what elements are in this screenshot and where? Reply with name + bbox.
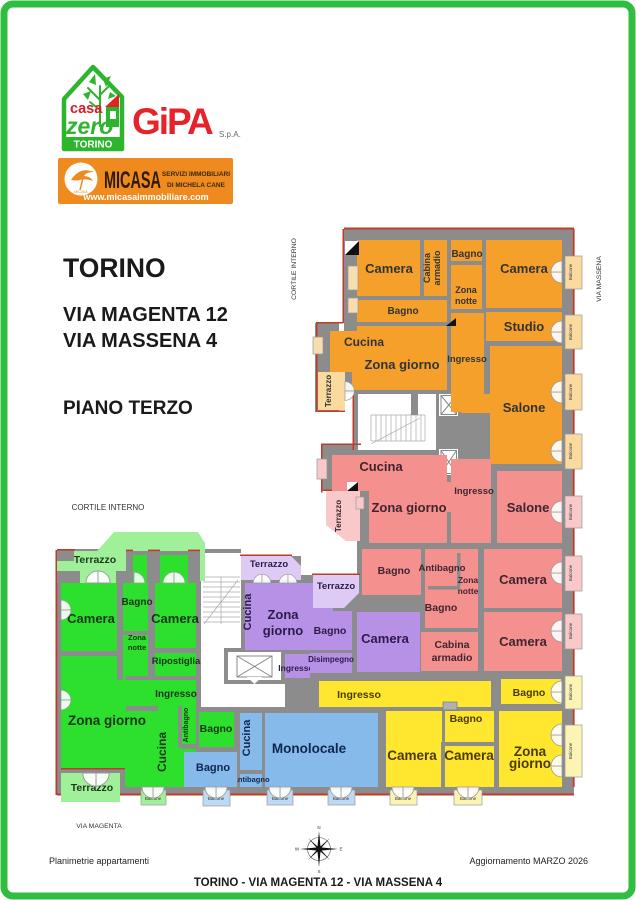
svg-text:Zona: Zona xyxy=(267,607,299,622)
svg-text:Cucina: Cucina xyxy=(241,719,253,757)
svg-text:N: N xyxy=(317,825,320,830)
svg-text:armadio: armadio xyxy=(432,652,473,664)
svg-text:Antibagno: Antibagno xyxy=(232,775,269,784)
svg-text:notte: notte xyxy=(458,586,479,596)
svg-text:Balcone: Balcone xyxy=(568,442,573,459)
svg-text:Zona giorno: Zona giorno xyxy=(364,357,439,372)
svg-text:Bagno: Bagno xyxy=(378,565,411,577)
svg-text:S: S xyxy=(317,869,320,874)
svg-text:Balcone: Balcone xyxy=(568,564,573,581)
svg-text:Bagno: Bagno xyxy=(387,306,418,317)
svg-text:Studio: Studio xyxy=(504,319,544,334)
svg-text:Ingresso: Ingresso xyxy=(454,486,494,497)
svg-text:Bagno: Bagno xyxy=(425,602,458,614)
svg-text:Bagno: Bagno xyxy=(513,687,546,699)
svg-text:Cucina: Cucina xyxy=(359,459,403,474)
svg-text:Bagno: Bagno xyxy=(451,249,482,260)
svg-text:Monolocale: Monolocale xyxy=(272,741,347,756)
svg-text:giorno: giorno xyxy=(509,756,551,771)
svg-text:Salone: Salone xyxy=(503,400,546,415)
svg-text:Cucina: Cucina xyxy=(242,593,254,631)
svg-text:VIA MASSENA: VIA MASSENA xyxy=(596,256,603,302)
svg-text:Bagno: Bagno xyxy=(200,723,233,735)
svg-text:Camera: Camera xyxy=(365,261,413,276)
svg-text:Zona giorno: Zona giorno xyxy=(68,713,146,728)
svg-text:giorno: giorno xyxy=(263,623,303,638)
svg-text:Cabina: Cabina xyxy=(422,252,432,283)
svg-text:Camera: Camera xyxy=(387,748,437,763)
svg-text:Camera: Camera xyxy=(500,261,548,276)
svg-text:TORINO: TORINO xyxy=(63,253,166,283)
svg-text:Bagno: Bagno xyxy=(121,597,152,608)
svg-text:CORTILE INTERNO: CORTILE INTERNO xyxy=(291,238,298,300)
svg-text:Camera: Camera xyxy=(151,611,199,626)
svg-text:PIANO TERZO: PIANO TERZO xyxy=(63,398,193,419)
svg-text:Balcone: Balcone xyxy=(568,622,573,639)
svg-text:DI MICHELA CANE: DI MICHELA CANE xyxy=(167,182,226,189)
svg-text:Balcone: Balcone xyxy=(568,323,573,340)
svg-text:Salone: Salone xyxy=(507,500,550,515)
svg-text:Balcone: Balcone xyxy=(568,742,573,759)
svg-text:notte: notte xyxy=(128,643,146,652)
svg-text:Camera: Camera xyxy=(499,572,547,587)
svg-text:zero: zero xyxy=(65,113,113,139)
svg-text:Camera: Camera xyxy=(361,631,409,646)
svg-text:Ingresso: Ingresso xyxy=(278,663,313,673)
svg-text:TORINO - VIA MAGENTA 12 - VIA: TORINO - VIA MAGENTA 12 - VIA MASSENA 4 xyxy=(194,877,443,889)
svg-text:Ripostiglia: Ripostiglia xyxy=(152,656,201,667)
svg-text:Planimetrie appartamenti: Planimetrie appartamenti xyxy=(49,856,149,866)
svg-text:Ingresso: Ingresso xyxy=(337,689,381,701)
svg-text:SERVIZI IMMOBILIARI: SERVIZI IMMOBILIARI xyxy=(162,171,230,178)
svg-text:VIA MAGENTA 12: VIA MAGENTA 12 xyxy=(63,304,228,326)
svg-text:Ingresso: Ingresso xyxy=(447,354,487,365)
svg-text:Terrazzo: Terrazzo xyxy=(250,559,289,570)
svg-text:Antibagno: Antibagno xyxy=(183,708,190,743)
svg-text:Zona: Zona xyxy=(128,633,147,642)
svg-text:Bagno: Bagno xyxy=(314,625,347,637)
svg-text:GiPA: GiPA xyxy=(132,101,213,142)
svg-text:notte: notte xyxy=(455,296,477,306)
svg-text:VIA MASSENA 4: VIA MASSENA 4 xyxy=(63,330,218,352)
svg-text:Bagno: Bagno xyxy=(196,762,231,774)
svg-text:Balcone: Balcone xyxy=(568,683,573,700)
svg-text:Zona giorno: Zona giorno xyxy=(371,500,446,515)
svg-text:TORINO: TORINO xyxy=(74,140,113,151)
svg-text:Camera: Camera xyxy=(499,634,547,649)
svg-text:Zona: Zona xyxy=(455,285,477,295)
svg-text:Disimpegno: Disimpegno xyxy=(308,655,354,664)
svg-text:www.micasaimmobiliare.com: www.micasaimmobiliare.com xyxy=(82,192,208,202)
svg-text:Cucina: Cucina xyxy=(344,335,384,349)
svg-text:S.p.A.: S.p.A. xyxy=(219,130,241,139)
svg-text:Bagno: Bagno xyxy=(450,713,483,725)
svg-text:Camera: Camera xyxy=(444,748,494,763)
svg-text:Zona: Zona xyxy=(458,575,479,585)
svg-text:Balcone: Balcone xyxy=(568,383,573,400)
svg-text:Camera: Camera xyxy=(67,611,115,626)
svg-text:Cabina: Cabina xyxy=(434,639,469,651)
svg-text:W: W xyxy=(295,847,300,852)
svg-text:Aggiornamento MARZO 2026: Aggiornamento MARZO 2026 xyxy=(469,856,588,866)
svg-text:armadio: armadio xyxy=(432,250,442,286)
svg-text:Terrazzo: Terrazzo xyxy=(317,581,356,592)
svg-text:Terrazzo: Terrazzo xyxy=(334,500,343,532)
svg-text:Ingresso: Ingresso xyxy=(155,689,197,700)
svg-text:MICASA: MICASA xyxy=(104,167,161,194)
svg-text:Balcone: Balcone xyxy=(568,503,573,520)
svg-text:E: E xyxy=(339,847,342,852)
svg-text:CORTILE INTERNO: CORTILE INTERNO xyxy=(72,503,145,512)
svg-text:Terrazzo: Terrazzo xyxy=(324,375,333,407)
svg-text:Antibagno: Antibagno xyxy=(419,563,466,574)
svg-text:Balcone: Balcone xyxy=(568,263,573,280)
svg-text:Cucina: Cucina xyxy=(155,732,169,772)
svg-text:Terrazzo: Terrazzo xyxy=(74,554,116,566)
svg-text:VIA MAGENTA: VIA MAGENTA xyxy=(76,823,122,830)
